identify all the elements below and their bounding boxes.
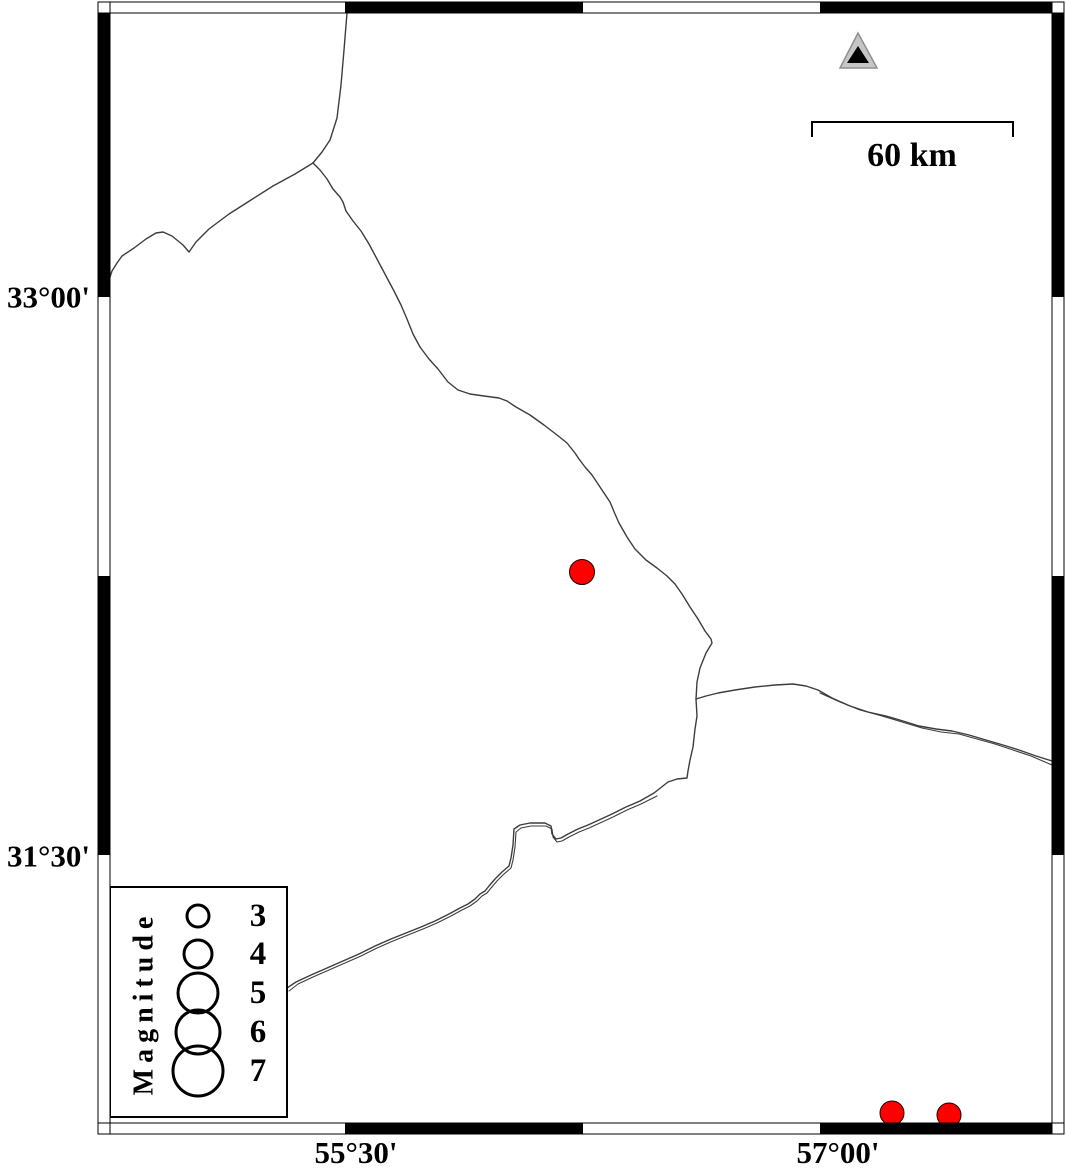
legend-label-mag-3: 3 [250,898,267,934]
frame-top-black-0 [345,2,583,13]
magnitude-legend: Magnitude34567 [110,887,287,1117]
frame-right-black-1 [1052,576,1064,855]
scale-bar-label: 60 km [867,137,957,174]
epicenter-marker-0 [570,560,595,585]
frame-left-black-0 [98,13,110,297]
frame-top-black-1 [820,2,1052,13]
frame-corner-2 [98,1123,110,1134]
axis-label-left-1: 31°30' [7,839,90,874]
map-canvas: 60 kmMagnitude3456733°00'31°30'55°30'57°… [0,0,1066,1172]
axis-label-left-0: 33°00' [7,280,90,315]
frame-corner-1 [1052,2,1064,13]
frame-left-black-1 [98,576,110,855]
legend-label-mag-7: 7 [250,1053,267,1089]
frame-corner-0 [98,2,110,13]
frame-bottom-black-1 [820,1123,1052,1134]
axis-label-bottom-1: 57°00' [796,1135,879,1170]
frame-corner-3 [1052,1123,1064,1134]
frame-bottom-black-0 [345,1123,583,1134]
axis-label-bottom-0: 55°30' [314,1135,397,1170]
frame-right-black-0 [1052,13,1064,297]
seismicity-map: 60 kmMagnitude3456733°00'31°30'55°30'57°… [0,0,1066,1172]
legend-label-mag-5: 5 [250,975,267,1011]
legend-title: Magnitude [129,911,160,1096]
epicenter-marker-1 [880,1101,904,1125]
legend-label-mag-6: 6 [250,1014,267,1050]
legend-label-mag-4: 4 [250,936,267,972]
